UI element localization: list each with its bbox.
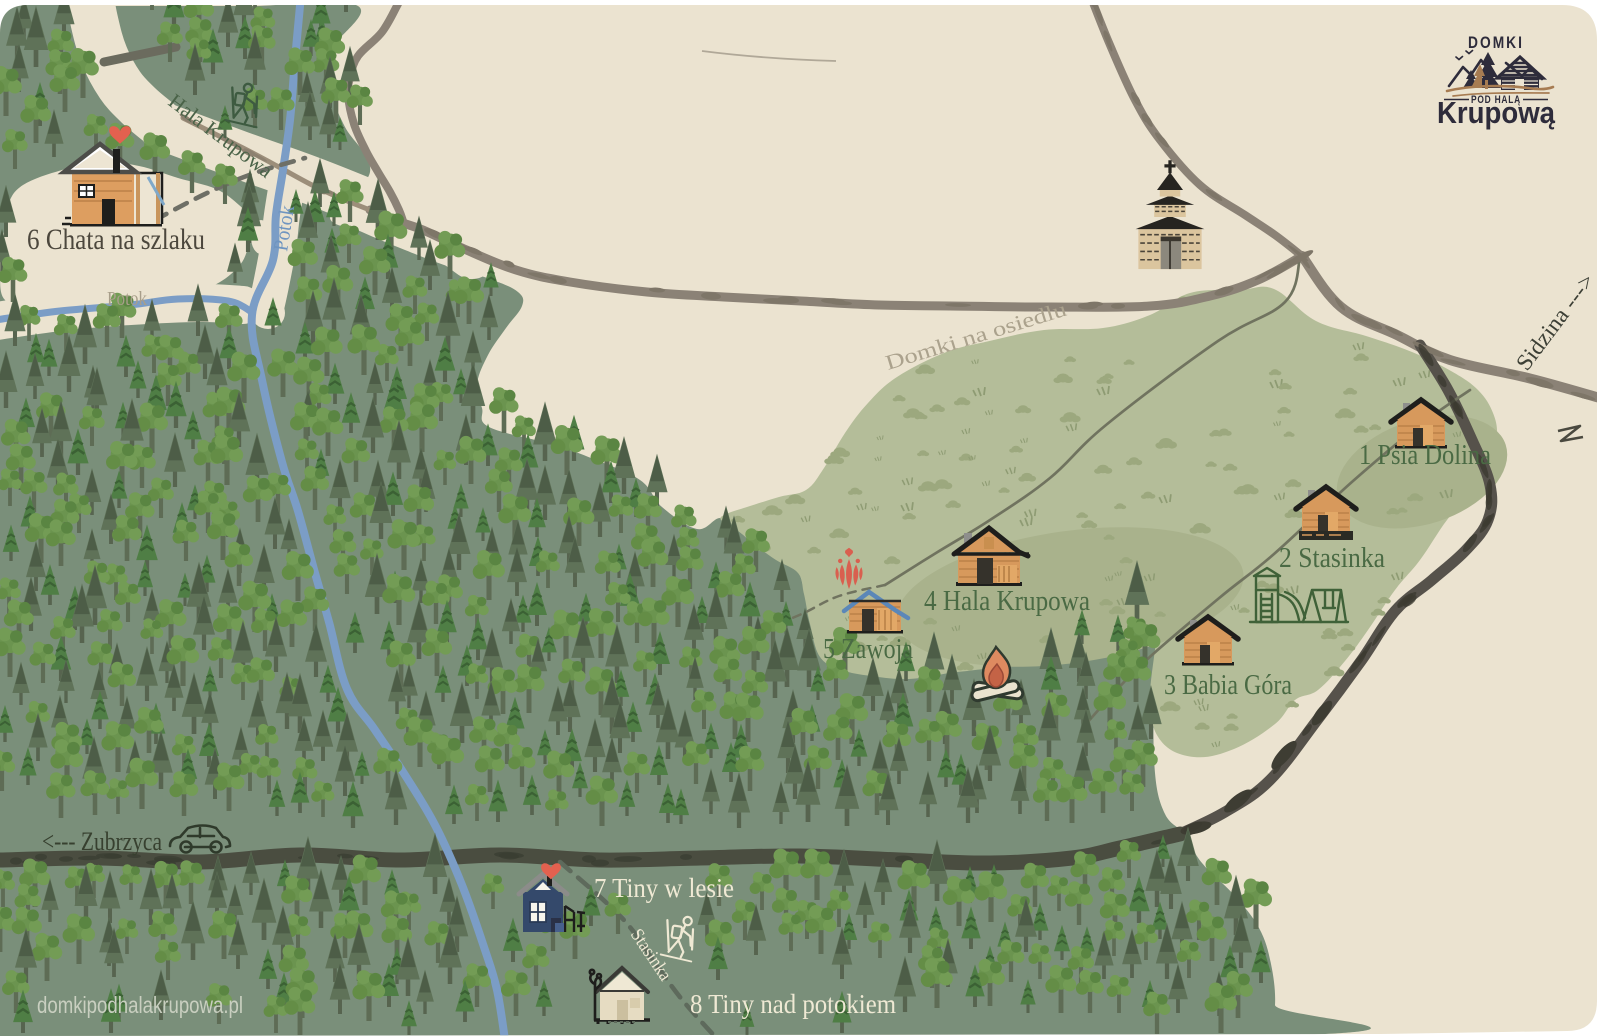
svg-text:4 Hala Krupowa: 4 Hala Krupowa xyxy=(924,586,1091,617)
svg-text:6 Chata na szlaku: 6 Chata na szlaku xyxy=(27,223,205,256)
svg-text:Potok: Potok xyxy=(107,288,147,310)
svg-text:5 Zawoja: 5 Zawoja xyxy=(823,634,913,665)
svg-text:Krupową: Krupową xyxy=(1437,95,1556,130)
svg-text:1 Psia Dolina: 1 Psia Dolina xyxy=(1359,440,1491,471)
svg-text:DOMKI: DOMKI xyxy=(1468,33,1524,52)
svg-text:2 Stasinka: 2 Stasinka xyxy=(1279,543,1386,574)
svg-text:7 Tiny w lesie: 7 Tiny w lesie xyxy=(594,873,734,903)
svg-text:8 Tiny nad potokiem: 8 Tiny nad potokiem xyxy=(690,989,896,1019)
svg-text:<--- Zubrzyca: <--- Zubrzyca xyxy=(42,827,162,856)
svg-text:3 Babia Góra: 3 Babia Góra xyxy=(1164,670,1292,701)
svg-text:domkipodhalakrupowa.pl: domkipodhalakrupowa.pl xyxy=(37,992,243,1018)
